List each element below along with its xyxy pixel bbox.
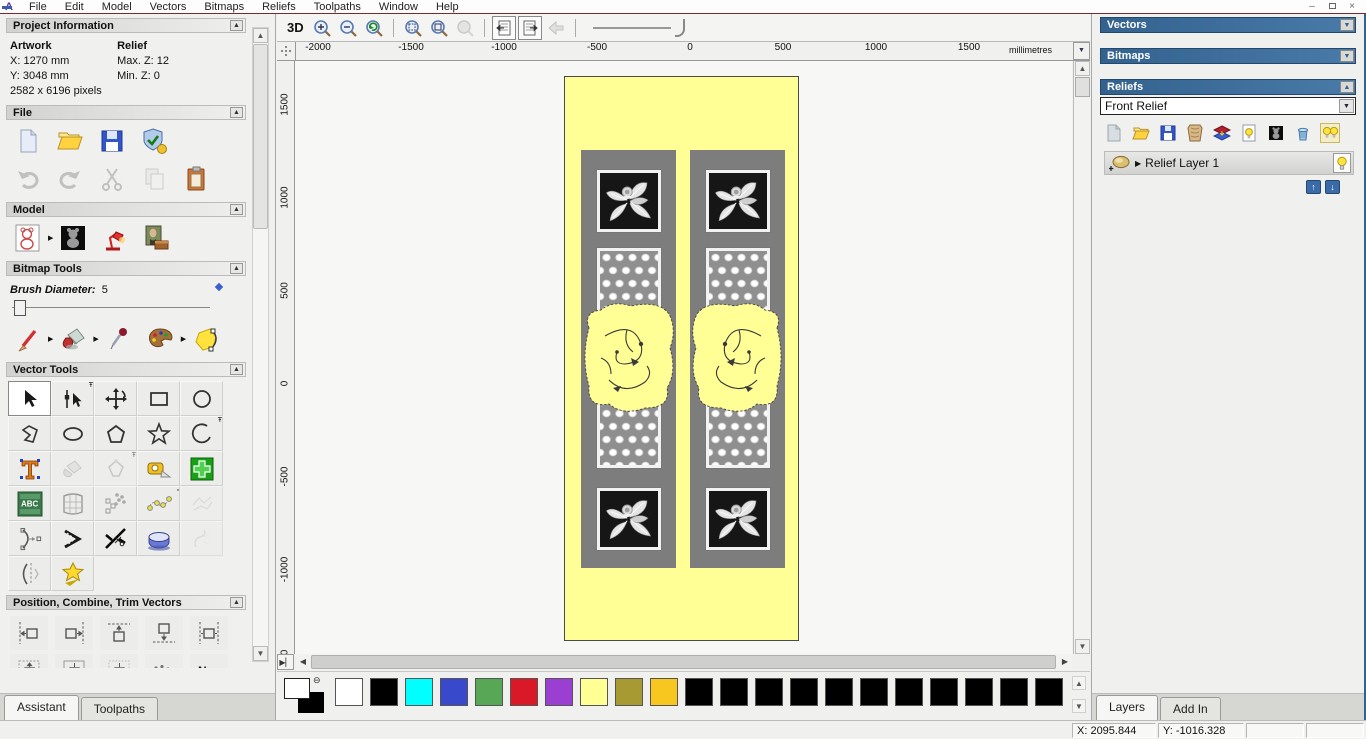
bitmaps-panel-header[interactable]: Bitmaps ▼ [1100,48,1356,64]
zoom-previous-icon [364,18,384,38]
project-information-title: Project Information [13,20,114,32]
scroll-thumb[interactable] [311,655,1056,669]
layers-panel: Vectors ▼ Bitmaps ▼ Reliefs ▲ Front Reli… [1091,14,1366,720]
menu-bitmaps[interactable]: Bitmaps [195,1,253,13]
colour-swatch[interactable] [1000,678,1028,706]
eyedropper-icon [108,326,130,352]
trim-vectors-button[interactable] [94,521,137,556]
layer-order-buttons: ↑ ↓ [1092,175,1364,194]
position-combine-trim-header[interactable]: Position, Combine, Trim Vectors ▲ [6,595,246,610]
block-copy-rotate-button[interactable] [180,451,223,486]
artwork-y-value: Y: 3048 mm [10,70,69,82]
green-cross-icon [190,457,214,481]
menu-reliefs[interactable]: Reliefs [253,1,305,13]
palette-icon [146,327,176,351]
vector-tools-title: Vector Tools [13,364,78,376]
view-3d-button[interactable]: 3D [283,20,308,35]
texture-button[interactable] [141,223,173,253]
colour-swatch[interactable] [965,678,993,706]
flower-relief-top-left [597,170,661,232]
arc-icon [191,423,213,445]
fit-spline-button[interactable]: ▫ [137,486,180,521]
artcam-window: A File Edit Model Vectors Bitmaps Relief… [0,0,1366,739]
cursor-x-readout: X: 2095.844 [1072,723,1156,738]
relief-layer-thumbnail-icon [1109,154,1131,172]
menu-help[interactable]: Help [427,1,468,13]
polygon-icon [105,423,127,445]
zoom-previous-button[interactable] [362,16,386,40]
toggle-bitmap-view-button[interactable] [492,16,516,40]
colour-swatch[interactable] [825,678,853,706]
assistant-panel: Project Information ▲ Artwork X: 1270 mm… [0,14,276,720]
align-left-icon [16,620,42,646]
open-folder-icon [1132,125,1150,141]
create-ellipse-button[interactable] [51,416,94,451]
relief-toolbar [1092,115,1364,147]
menu-model[interactable]: Model [93,1,141,13]
collapse-reliefs-button[interactable]: ▲ [1340,81,1354,93]
transform-vectors-button[interactable] [94,381,137,416]
h-ruler-label: 0 [687,42,693,53]
yellow-star-icon [59,561,87,587]
tab-layers[interactable]: Layers [1096,695,1158,720]
bitmaps-panel-title: Bitmaps [1107,50,1150,62]
primary-colour-swatch[interactable] [284,678,310,699]
collapse-vector-tools-button[interactable]: ▲ [230,364,243,375]
preview-relief-icon [546,19,566,37]
close-button[interactable]: × [1346,2,1358,12]
colour-link-icon: ⊖ [313,675,321,686]
h-ruler-label: 1000 [865,42,887,53]
relief-heading: Relief [117,40,147,52]
fit-curve-icon [146,493,172,515]
ellipse-icon [61,423,85,445]
offset-relief-button[interactable] [1212,123,1232,143]
zoom-in-button[interactable] [310,16,334,40]
colour-swatch[interactable] [615,678,643,706]
paint-pencil-icon [15,326,41,352]
tab-add-in[interactable]: Add In [1160,697,1221,720]
new-layer-icon [1106,124,1122,142]
scroll-down-button[interactable]: ▼ [1075,639,1090,654]
create-text-button[interactable] [8,451,51,486]
offset-vector-icon [105,458,127,480]
colour-swatch[interactable] [930,678,958,706]
measure-button[interactable] [137,451,180,486]
v-ruler-label: 1000 [280,183,291,213]
bitmap-to-vector-icon [192,326,220,352]
align-top-icon [106,620,132,646]
new-relief-layer-button[interactable] [1104,123,1124,143]
align-tools-row-2: Nes [0,650,252,668]
lighting-material-button[interactable] [99,223,131,253]
artwork-heading: Artwork [10,40,52,52]
scroll-thumb[interactable] [1075,77,1090,97]
mona-lisa-texture-icon [142,224,172,252]
scroll-left-button[interactable]: ◀ [296,655,310,669]
flower-relief-bottom-right [706,488,770,550]
reliefs-panel-header[interactable]: Reliefs ▲ [1100,79,1356,95]
align-tools-row [0,612,252,650]
menu-file[interactable]: File [20,1,56,13]
scroll-thumb[interactable] [253,44,268,229]
collapse-model-button[interactable]: ▲ [230,204,243,215]
tab-assistant[interactable]: Assistant [4,695,79,720]
collapse-file-button[interactable]: ▲ [230,107,243,118]
vector-tools-header[interactable]: Vector Tools ▲ [6,362,246,377]
centre-page-y-icon [106,658,132,668]
zoom-fit-button[interactable] [427,16,451,40]
save-relief-button[interactable] [1158,123,1178,143]
ghost-tool-icon [190,527,214,551]
relief-selector-value: Front Relief [1105,99,1167,113]
undo-icon [15,167,41,191]
flood-flyout-arrow[interactable]: ▶ [93,335,98,343]
redo-icon [57,167,83,191]
toolbar-separator [484,19,485,37]
trim-scissors-icon [103,526,129,552]
horizontal-scrollbar[interactable]: ◀ ▶ [296,654,1072,670]
zoom-fit-icon [429,18,449,38]
mirror-icon [18,561,42,587]
restore-button[interactable] [1326,2,1338,12]
status-cell-empty [1246,723,1304,738]
nest-dots-icon [152,664,176,668]
lamp-icon [101,224,129,252]
vector-tools-grid: Ŧ Ŧ Ŧ ABC ▫ [0,379,236,591]
save-icon [99,128,125,154]
expand-vectors-button[interactable]: ▼ [1340,19,1354,31]
h-ruler-label: -1000 [491,42,517,53]
new-file-icon [15,128,41,154]
primary-secondary-colour-indicator[interactable]: ⊖ [283,677,335,717]
greyscale-model-icon [1268,125,1284,141]
brush-diameter-label: Brush Diameter: [10,284,96,296]
colour-swatch[interactable] [755,678,783,706]
nesting-button[interactable]: Nes [190,654,228,668]
scroll-up-button[interactable]: ▲ [253,28,268,43]
edit-model-button[interactable] [12,223,44,253]
relief-selector[interactable]: Front Relief ▼ [1100,97,1356,115]
menu-toolpaths[interactable]: Toolpaths [305,1,370,13]
create-polygon-button[interactable] [94,416,137,451]
v-ruler-label: 1500 [280,90,291,120]
save-icon [1160,125,1176,141]
door-strip-right [690,150,785,568]
copy-icon [141,166,167,192]
bitmap-to-vector-button[interactable] [190,324,222,354]
colour-swatch[interactable] [510,678,538,706]
relief-max-z-value: Max. Z: 12 [117,55,169,67]
toolbar-separator [393,19,394,37]
artwork-x-value: X: 1270 mm [10,55,69,67]
paint-flyout-arrow[interactable]: ▶ [48,335,53,343]
h-ruler-label: 500 [775,42,792,53]
assistant-tab-bar: Assistant Toolpaths [0,693,275,720]
relief-layer-name[interactable]: Relief Layer 1 [1145,156,1219,170]
model-viewport[interactable] [295,61,1072,654]
ruler-units-dropdown[interactable]: ▼ [1073,42,1090,60]
artwork-pixels-value: 2582 x 6196 pixels [10,85,102,97]
text-block-button[interactable]: ABC [8,486,51,521]
arc-fit-icon [18,527,42,551]
paste-clipboard-icon [184,165,208,193]
polyline-icon [19,423,41,445]
colour-swatch[interactable] [720,678,748,706]
mirror-vectors-button[interactable] [8,556,51,591]
move-layer-up-button[interactable]: ↑ [1306,180,1321,194]
menu-bar: A File Edit Model Vectors Bitmaps Relief… [0,0,1366,14]
colour-picker-button[interactable] [103,324,135,354]
palette-swatches [335,678,1068,708]
pane-toggle-button[interactable]: ▶▏ [277,654,294,670]
align-left-button[interactable] [10,616,48,650]
centre-page-x-icon [61,658,87,668]
redo-button[interactable] [54,164,86,194]
slider-thumb[interactable] [14,300,26,316]
colour-swatch[interactable] [370,678,398,706]
scroll-right-button[interactable]: ▶ [1058,655,1072,669]
move-layer-down-button[interactable]: ↓ [1325,180,1340,194]
menu-window[interactable]: Window [370,1,427,13]
colour-swatch[interactable] [475,678,503,706]
minimize-button[interactable]: – [1306,2,1318,12]
flower-relief-top-right [706,170,770,232]
svg-text:ABC: ABC [21,499,39,508]
node-editing-button[interactable]: Ŧ [51,381,94,416]
trace-bitmap-icon [61,458,85,480]
ruler-origin-button[interactable] [277,42,296,60]
slider-handle[interactable] [675,19,685,37]
create-triangle-mesh-button[interactable] [1266,123,1286,143]
align-bottom-icon [151,620,177,646]
zoom-box-icon [403,18,423,38]
centre-in-page-button[interactable] [10,654,48,668]
project-information-body: Artwork X: 1270 mm Y: 3048 mm 2582 x 619… [0,35,252,101]
paint-button[interactable] [12,324,44,354]
vectors-panel-header[interactable]: Vectors ▼ [1100,17,1356,33]
star-icon [147,422,171,446]
collapse-project-info-button[interactable]: ▲ [230,20,243,31]
file-section-title: File [13,107,32,119]
h-ruler-label: -1500 [398,42,424,53]
bitmap-view-icon [495,19,513,37]
create-star-button[interactable] [137,416,180,451]
colour-palette: ⊖ [277,671,1090,720]
tab-toolpaths[interactable]: Toolpaths [81,697,158,720]
paste-button[interactable] [180,164,212,194]
colour-swatch[interactable] [790,678,818,706]
floral-ornament-right [688,300,787,416]
fit-arcs-button[interactable] [8,521,51,556]
cursor-y-readout: Y: -1016.328 [1158,723,1244,738]
paste-array-icon [103,491,129,517]
slider-track[interactable] [12,307,210,308]
view-opacity-slider[interactable] [593,18,685,38]
interactive-distort-button[interactable] [137,521,180,556]
colour-swatch[interactable] [895,678,923,706]
vertical-scrollbar[interactable]: ▲ ▼ [1073,61,1090,654]
colour-swatch[interactable] [685,678,713,706]
colour-swatch[interactable] [335,678,363,706]
scroll-up-button[interactable]: ▲ [1075,61,1090,76]
abc-text-block-icon: ABC [17,491,43,517]
ruler-units-label: millimetres [1009,45,1052,55]
join-vectors-button[interactable] [51,521,94,556]
colour-swatch[interactable] [860,678,888,706]
undo-button[interactable] [12,164,44,194]
centre-page-icon [16,658,42,668]
collapse-position-button[interactable]: ▲ [230,597,243,608]
right-tab-bar: Layers Add In [1092,693,1364,720]
toggle-vector-view-button[interactable] [518,16,542,40]
shield-check-icon [140,127,168,155]
align-right-icon [61,620,87,646]
relief-min-z-value: Min. Z: 0 [117,70,160,82]
lightbulb-page-icon [1242,124,1256,142]
app-logo-icon: A [2,1,20,13]
preview-relief-button[interactable] [544,16,568,40]
join-chevron-icon [61,527,85,551]
transform-icon [104,387,128,411]
envelope-distort-button[interactable] [51,486,94,521]
palette-scroll: ▲ ▼ [1072,676,1088,716]
select-arrow-icon [19,388,41,410]
h-ruler-label: -2000 [305,42,331,53]
palette-button[interactable] [145,324,177,354]
align-centre-icon [196,620,222,646]
layer-visibility-button[interactable] [1333,153,1351,173]
cut-scissors-icon [100,166,124,192]
greyscale-model-button[interactable] [57,223,89,253]
project-information-header[interactable]: Project Information ▲ [6,18,246,33]
align-bottom-button[interactable] [145,616,183,650]
vectors-panel-title: Vectors [1107,19,1147,31]
vector-texture-button[interactable] [51,556,94,591]
scroll-down-button[interactable]: ▼ [253,646,268,661]
model-check-button[interactable] [138,126,170,156]
offset-vector-button[interactable]: Ŧ [94,451,137,486]
canvas-region: 3D -2000 -1500 -1000 -500 0 500 [277,14,1090,720]
colour-swatch[interactable] [580,678,608,706]
vector-doctor-button[interactable] [180,521,223,556]
horizontal-ruler: -2000 -1500 -1000 -500 0 500 1000 1500 m… [296,42,1072,60]
reliefs-panel-title: Reliefs [1107,81,1143,93]
slider-track[interactable] [593,27,671,29]
view-toolbar: 3D [277,14,1090,42]
align-top-button[interactable] [100,616,138,650]
lightbulb-icon [1336,156,1348,171]
bitmap-boundary-button[interactable] [51,451,94,486]
zoom-box-button[interactable] [401,16,425,40]
palette-scroll-down-button[interactable]: ▼ [1072,699,1086,713]
model-section-header[interactable]: Model ▲ [6,202,246,217]
copy-button[interactable] [138,164,170,194]
menu-edit[interactable]: Edit [56,1,93,13]
status-cell-empty [1306,723,1364,738]
align-centre-button[interactable] [190,616,228,650]
relief-layer-row[interactable]: ▶ Relief Layer 1 [1104,151,1354,175]
flower-relief-bottom-left [597,488,661,550]
envelope-grid-icon [60,492,86,516]
zoom-in-icon [312,18,332,38]
expand-bitmaps-button[interactable]: ▼ [1340,50,1354,62]
double-lightbulb-icon [1321,125,1339,141]
colour-swatch[interactable] [1035,678,1063,706]
relief-selector-dropdown-button[interactable]: ▼ [1339,99,1354,113]
open-folder-icon [56,128,84,154]
toggle-all-layers-visibility-button[interactable] [1320,123,1340,143]
file-section-header[interactable]: File ▲ [6,105,246,120]
select-vectors-button[interactable] [8,381,51,416]
zoom-object-icon [455,18,475,38]
collapse-bitmap-tools-button[interactable]: ▲ [230,263,243,274]
create-rectangle-button[interactable] [137,381,180,416]
new-model-button[interactable] [12,126,44,156]
open-relief-button[interactable] [1131,123,1151,143]
create-arc-button[interactable]: Ŧ [180,416,223,451]
zoom-out-button[interactable] [336,16,360,40]
layer-expand-arrow[interactable]: ▶ [1135,159,1141,168]
colour-swatch[interactable] [405,678,433,706]
model-flyout-arrow[interactable]: ▶ [48,234,53,242]
bitmap-tools-header[interactable]: Bitmap Tools ▲ [6,261,246,276]
vertical-ruler: 1500 1000 500 0 -500 -1000 -1500 [277,61,295,654]
nest-vectors-button[interactable] [145,654,183,668]
delete-relief-layer-button[interactable] [1293,123,1313,143]
wrap-ghost-icon [190,493,214,515]
create-polyline-button[interactable] [8,416,51,451]
colour-swatch[interactable] [440,678,468,706]
relief-texture-button[interactable] [1185,123,1205,143]
palette-scroll-up-button[interactable]: ▲ [1072,676,1086,690]
vector-view-icon [521,19,539,37]
v-ruler-label: -1000 [280,555,291,585]
menu-vectors[interactable]: Vectors [141,1,196,13]
cut-button[interactable] [96,164,128,194]
flood-fill-button[interactable] [57,324,89,354]
jelly-dome-icon [146,527,172,551]
colour-swatch[interactable] [650,678,678,706]
measure-tape-icon [146,457,172,481]
circle-icon [191,388,213,410]
greyscale-preview-button[interactable] [1239,123,1259,143]
colour-swatch[interactable] [545,678,573,706]
position-combine-trim-title: Position, Combine, Trim Vectors [13,597,182,609]
block-paste-button[interactable] [94,486,137,521]
palette-flyout-arrow[interactable]: ▶ [181,335,186,343]
centre-in-page-x-button[interactable] [55,654,93,668]
v-ruler-label: 500 [280,276,291,306]
open-model-button[interactable] [54,126,86,156]
create-circle-button[interactable] [180,381,223,416]
floral-ornament-left [579,300,678,416]
brush-diameter-slider[interactable] [12,298,240,318]
align-right-button[interactable] [55,616,93,650]
v-ruler-label: 0 [280,369,291,399]
wrap-vectors-button[interactable] [180,486,223,521]
centre-in-page-y-button[interactable] [100,654,138,668]
status-bar: X: 2095.844 Y: -1016.328 [0,720,1366,739]
zoom-object-button[interactable] [453,16,477,40]
greyscale-model-icon [59,224,87,252]
door-panel-artwork[interactable] [564,76,799,641]
brush-diameter-value: 5 [102,284,108,296]
assistant-scrollbar[interactable]: ▲ ▼ [252,27,269,662]
node-edit-icon [62,388,84,410]
save-model-button[interactable] [96,126,128,156]
horizontal-scrollbar-row: ▶▏ ◀ ▶ [277,654,1090,671]
